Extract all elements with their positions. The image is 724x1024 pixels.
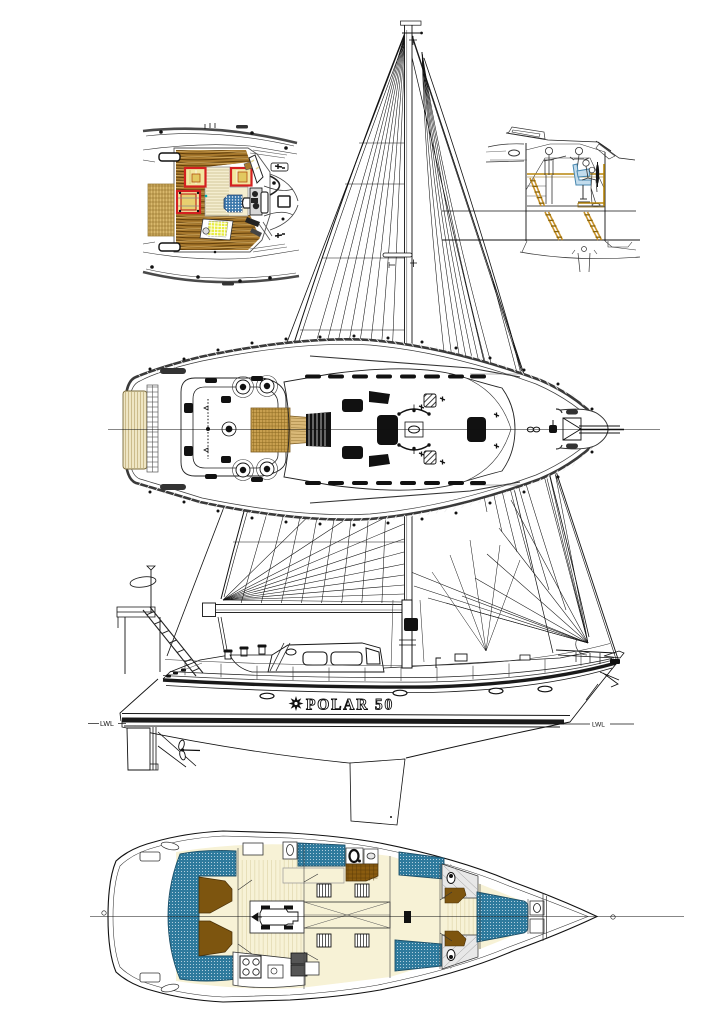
svg-text:LWL: LWL [592, 722, 605, 729]
svg-text:LWL: LWL [100, 721, 114, 728]
svg-text:POLAR 50: POLAR 50 [306, 697, 394, 714]
